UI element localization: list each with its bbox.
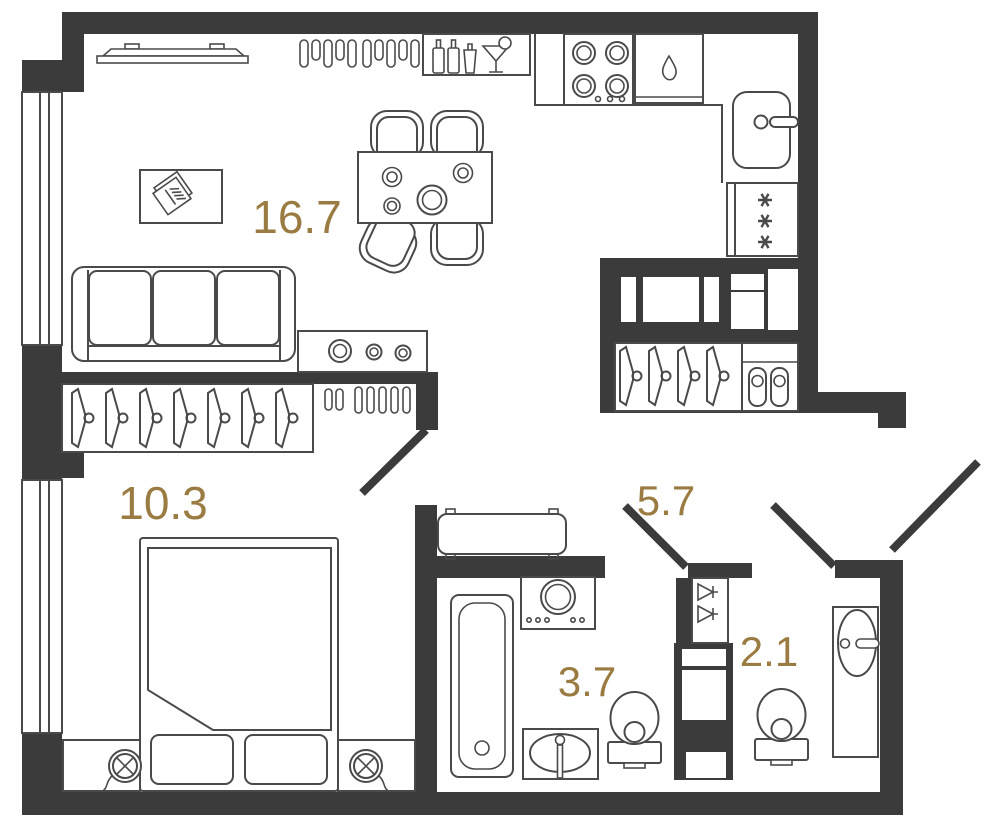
hall-wardrobe bbox=[615, 343, 742, 411]
washing-machine-icon bbox=[521, 577, 595, 629]
slipper-icon bbox=[771, 368, 788, 406]
wall-bathroom-top bbox=[415, 556, 605, 578]
wc-sink-icon bbox=[833, 607, 879, 757]
bench-icon bbox=[438, 509, 566, 559]
wall-bump-right bbox=[878, 413, 906, 428]
bathtub-icon bbox=[451, 595, 513, 777]
wall-right-upper bbox=[798, 12, 818, 258]
label-bedroom-area: 10.3 bbox=[118, 477, 208, 529]
label-hallway-area: 5.7 bbox=[637, 477, 695, 524]
kitchen bbox=[535, 34, 798, 256]
bedroom bbox=[62, 384, 415, 792]
wall-corner-topleft bbox=[62, 12, 84, 92]
sofa bbox=[72, 267, 295, 361]
floorplan-svg: 16.7 10.3 5.7 3.7 2.1 bbox=[0, 0, 992, 821]
wall-living-bedroom bbox=[62, 372, 438, 384]
wall-pilaster bbox=[62, 452, 84, 478]
wall-bottom bbox=[22, 792, 903, 815]
radiator-grille-icon bbox=[325, 387, 410, 413]
dresser bbox=[298, 331, 427, 372]
dining-set bbox=[355, 111, 492, 278]
wall-shaft-strip bbox=[676, 578, 692, 643]
label-living-area: 16.7 bbox=[252, 191, 342, 243]
slipper-icon bbox=[749, 368, 766, 406]
hallway bbox=[438, 509, 566, 559]
floorplan-page: 16.7 10.3 5.7 3.7 2.1 bbox=[0, 0, 992, 821]
bathroom-sink-icon bbox=[523, 729, 598, 779]
pillow bbox=[245, 735, 327, 784]
wc-door bbox=[773, 505, 834, 566]
bed bbox=[140, 538, 338, 791]
entrance-door bbox=[892, 462, 978, 550]
label-wc-area: 2.1 bbox=[740, 628, 798, 675]
tv-icon bbox=[97, 44, 248, 63]
shoe-cabinet bbox=[742, 343, 798, 411]
bedroom-wardrobe bbox=[62, 384, 313, 452]
bar-shelf-icon bbox=[423, 34, 530, 75]
radiator-grille-icon bbox=[300, 40, 419, 67]
wall-bedroom-door-stub bbox=[416, 384, 438, 430]
dishwasher-icon bbox=[635, 34, 703, 103]
wall-top bbox=[62, 12, 818, 34]
wall-left-2 bbox=[22, 345, 62, 480]
label-bathroom-area: 3.7 bbox=[558, 658, 616, 705]
window-living bbox=[22, 92, 62, 345]
window-bedroom bbox=[22, 480, 62, 733]
stove-icon bbox=[564, 34, 633, 105]
wall-right-lower bbox=[880, 578, 903, 792]
wall-bathroom-door-tab bbox=[688, 563, 752, 578]
bathroom bbox=[451, 577, 661, 779]
kitchen-sink-icon bbox=[733, 92, 798, 168]
bedroom-door bbox=[362, 430, 426, 493]
coffee-table bbox=[140, 170, 222, 223]
toilet-icon bbox=[755, 689, 808, 765]
wall-band-right bbox=[818, 392, 906, 413]
wall-bedroom-bathroom bbox=[415, 505, 437, 793]
pillow bbox=[151, 735, 233, 784]
wall-entrance-tab bbox=[835, 560, 903, 578]
wall-left-1 bbox=[22, 60, 62, 92]
fridge-icon bbox=[727, 183, 798, 256]
wall-left-3 bbox=[22, 733, 62, 792]
